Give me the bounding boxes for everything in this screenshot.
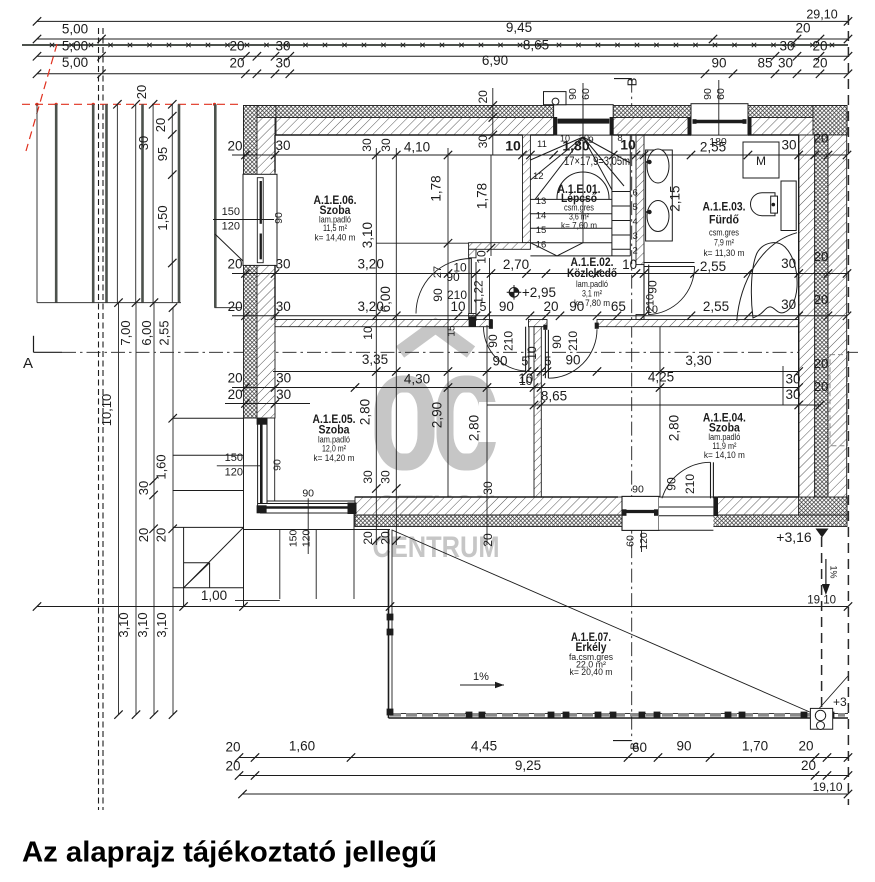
svg-text:30: 30 — [379, 138, 393, 152]
svg-text:5,00: 5,00 — [62, 55, 88, 70]
svg-text:10: 10 — [519, 374, 533, 388]
svg-text:95: 95 — [155, 147, 170, 161]
svg-text:90: 90 — [646, 280, 660, 294]
svg-text:+3,16: +3,16 — [776, 529, 812, 545]
svg-text:13: 13 — [536, 196, 547, 207]
svg-text:10: 10 — [505, 138, 521, 154]
svg-text:4,45: 4,45 — [471, 739, 497, 754]
svg-text:30: 30 — [481, 481, 495, 495]
svg-text:Közlekedő: Közlekedő — [567, 266, 617, 280]
svg-text:20: 20 — [153, 118, 168, 132]
svg-text:90: 90 — [272, 459, 284, 471]
svg-text:3,35: 3,35 — [362, 352, 388, 367]
svg-text:3: 3 — [633, 231, 638, 242]
svg-text:Az alaprajz tájékoztató jelleg: Az alaprajz tájékoztató jellegű — [22, 837, 437, 869]
svg-text:30: 30 — [361, 470, 375, 484]
svg-text:k= 20,40 m: k= 20,40 m — [570, 667, 613, 677]
svg-text:1,78: 1,78 — [429, 175, 444, 201]
svg-text:5,00: 5,00 — [62, 39, 88, 54]
svg-text:90: 90 — [711, 56, 726, 71]
svg-text:150: 150 — [222, 206, 240, 218]
svg-text:2,80: 2,80 — [667, 415, 682, 441]
svg-text:210: 210 — [447, 288, 467, 302]
svg-text:2,55: 2,55 — [157, 320, 172, 345]
svg-text:20: 20 — [229, 56, 244, 71]
svg-text:30: 30 — [136, 481, 151, 495]
svg-text:k= 7,80 m: k= 7,80 m — [574, 298, 610, 309]
svg-text:90: 90 — [676, 739, 691, 754]
svg-text:Fürdő: Fürdő — [709, 213, 739, 227]
svg-text:30: 30 — [579, 133, 589, 143]
svg-text:120: 120 — [638, 532, 650, 550]
svg-text:19,10: 19,10 — [813, 780, 843, 794]
svg-text:3,10: 3,10 — [360, 222, 375, 248]
svg-text:11: 11 — [537, 139, 547, 150]
svg-text:90: 90 — [499, 299, 514, 314]
svg-text:20: 20 — [228, 371, 243, 386]
svg-text:60: 60 — [632, 740, 647, 755]
svg-text:4,10: 4,10 — [404, 140, 430, 155]
svg-text:90: 90 — [273, 212, 285, 224]
svg-text:30: 30 — [276, 299, 291, 314]
svg-text:8,65: 8,65 — [541, 389, 567, 404]
svg-text:10: 10 — [560, 134, 570, 144]
svg-text:20: 20 — [481, 533, 495, 547]
svg-text:6,90: 6,90 — [482, 53, 508, 68]
svg-text:1,78: 1,78 — [475, 183, 490, 209]
svg-text:90: 90 — [431, 288, 445, 302]
svg-text:20: 20 — [814, 356, 828, 371]
svg-text:10: 10 — [361, 326, 375, 340]
svg-text:20: 20 — [229, 39, 244, 54]
svg-text:85: 85 — [757, 56, 772, 71]
svg-text:5: 5 — [545, 354, 552, 368]
svg-text:210: 210 — [683, 474, 697, 494]
svg-text:1,00: 1,00 — [201, 588, 227, 603]
svg-text:k= 11,30 m: k= 11,30 m — [704, 248, 745, 259]
svg-text:2,55: 2,55 — [703, 299, 729, 314]
svg-text:210: 210 — [501, 331, 515, 351]
svg-text:90: 90 — [632, 484, 644, 496]
svg-text:16: 16 — [536, 240, 547, 251]
svg-text:2,55: 2,55 — [700, 259, 726, 274]
svg-text:3,10: 3,10 — [154, 612, 169, 637]
svg-text:2,80: 2,80 — [358, 399, 373, 425]
svg-text:20: 20 — [227, 257, 242, 272]
svg-text:30: 30 — [275, 257, 290, 272]
svg-text:k= 14,10 m: k= 14,10 m — [704, 450, 745, 461]
svg-text:90: 90 — [550, 335, 564, 349]
svg-text:1%: 1% — [473, 671, 489, 683]
svg-text:30: 30 — [276, 371, 291, 386]
svg-text:90: 90 — [302, 488, 314, 500]
svg-text:210: 210 — [566, 331, 580, 351]
svg-text:20: 20 — [361, 531, 375, 545]
svg-text:k= 14,40 m: k= 14,40 m — [315, 232, 356, 243]
svg-text:2,80: 2,80 — [466, 415, 481, 441]
svg-text:6,00: 6,00 — [139, 320, 154, 345]
svg-text:6,00: 6,00 — [378, 286, 393, 312]
svg-text:20: 20 — [154, 528, 169, 542]
svg-text:29,10: 29,10 — [806, 8, 837, 22]
svg-text:30: 30 — [275, 39, 290, 54]
svg-text:20: 20 — [476, 90, 490, 104]
svg-text:30: 30 — [781, 297, 796, 312]
svg-text:19,10: 19,10 — [807, 595, 836, 607]
svg-text:60: 60 — [580, 88, 592, 100]
svg-text:60: 60 — [625, 535, 637, 547]
svg-text:20: 20 — [228, 299, 243, 314]
svg-text:150: 150 — [225, 452, 243, 464]
svg-text:10: 10 — [620, 137, 636, 153]
svg-text:20: 20 — [798, 739, 813, 754]
svg-text:20: 20 — [814, 131, 828, 146]
svg-text:1,22: 1,22 — [472, 280, 486, 304]
svg-text:1,60: 1,60 — [289, 739, 315, 754]
svg-text:9,25: 9,25 — [515, 758, 541, 773]
svg-text:30: 30 — [378, 470, 392, 484]
svg-text:1,70: 1,70 — [742, 739, 768, 754]
svg-text:20: 20 — [543, 299, 558, 314]
svg-text:15: 15 — [446, 325, 457, 337]
svg-text:30: 30 — [275, 56, 290, 71]
svg-text:20: 20 — [814, 292, 828, 307]
svg-text:3,30: 3,30 — [685, 353, 711, 368]
svg-text:2,90: 2,90 — [430, 402, 445, 428]
svg-text:90: 90 — [567, 88, 579, 100]
svg-text:M: M — [756, 154, 766, 168]
svg-text:90: 90 — [492, 353, 507, 368]
svg-text:1,60: 1,60 — [154, 454, 169, 479]
svg-text:3,10: 3,10 — [135, 612, 150, 637]
svg-text:20: 20 — [814, 249, 828, 264]
svg-text:30: 30 — [136, 136, 151, 150]
svg-text:30: 30 — [785, 387, 800, 402]
svg-text:5,00: 5,00 — [62, 22, 88, 37]
svg-text:2,70: 2,70 — [503, 257, 529, 272]
svg-text:2,15: 2,15 — [668, 185, 683, 211]
svg-text:4,30: 4,30 — [404, 372, 430, 387]
svg-text:90: 90 — [565, 353, 580, 368]
svg-text:20: 20 — [225, 759, 240, 774]
svg-text:+2,95: +2,95 — [522, 285, 556, 300]
svg-text:90: 90 — [446, 270, 460, 284]
svg-text:20: 20 — [814, 379, 828, 394]
svg-text:20: 20 — [228, 387, 243, 402]
svg-text:4,25: 4,25 — [648, 370, 674, 385]
svg-text:10,10: 10,10 — [99, 394, 114, 427]
svg-text:10: 10 — [622, 257, 637, 272]
svg-text:90: 90 — [665, 477, 679, 491]
svg-text:2: 2 — [633, 245, 638, 256]
svg-text:15: 15 — [536, 225, 547, 236]
svg-text:30: 30 — [785, 372, 800, 387]
svg-text:120: 120 — [301, 529, 313, 547]
svg-text:30: 30 — [781, 256, 796, 271]
svg-text:120: 120 — [225, 467, 243, 479]
svg-text:150: 150 — [288, 529, 300, 547]
svg-text:60: 60 — [715, 88, 727, 100]
svg-text:65: 65 — [611, 299, 626, 314]
svg-text:20: 20 — [225, 740, 240, 755]
svg-text:A: A — [23, 355, 33, 372]
svg-text:120: 120 — [222, 221, 240, 233]
svg-text:20: 20 — [136, 528, 151, 542]
svg-text:30: 30 — [779, 39, 794, 54]
svg-text:12: 12 — [533, 171, 544, 182]
svg-text:20: 20 — [795, 21, 810, 36]
svg-text:30: 30 — [360, 138, 374, 152]
svg-text:1%: 1% — [829, 565, 839, 578]
svg-text:10: 10 — [525, 346, 539, 360]
svg-text:90: 90 — [486, 334, 500, 348]
svg-text:30: 30 — [276, 387, 291, 402]
svg-text:90: 90 — [702, 88, 714, 100]
svg-text:8,65: 8,65 — [523, 38, 549, 53]
svg-text:5: 5 — [633, 202, 638, 213]
svg-text:20: 20 — [812, 56, 827, 71]
svg-text:1,50: 1,50 — [155, 205, 170, 230]
svg-text:7,00: 7,00 — [118, 320, 133, 345]
svg-text:30: 30 — [781, 138, 796, 153]
svg-text:9,45: 9,45 — [506, 20, 532, 35]
svg-text:2,55: 2,55 — [700, 140, 726, 155]
svg-text:20: 20 — [801, 758, 816, 773]
svg-text:20: 20 — [812, 39, 827, 54]
svg-text:+3,: +3, — [833, 695, 850, 709]
svg-text:4: 4 — [633, 217, 638, 228]
svg-text:27: 27 — [432, 266, 444, 278]
svg-text:A.1.E.03.: A.1.E.03. — [703, 200, 746, 214]
svg-text:30: 30 — [778, 56, 793, 71]
svg-text:3,20: 3,20 — [358, 257, 384, 272]
svg-text:20: 20 — [378, 531, 392, 545]
svg-text:20: 20 — [134, 85, 149, 99]
svg-text:30: 30 — [275, 138, 290, 153]
svg-text:17×17,9=3,05m: 17×17,9=3,05m — [564, 156, 630, 168]
svg-text:k= 7,60 m: k= 7,60 m — [561, 220, 597, 231]
svg-text:3,10: 3,10 — [116, 612, 131, 637]
svg-text:k= 14,20 m: k= 14,20 m — [314, 453, 355, 464]
svg-text:20: 20 — [227, 139, 242, 154]
svg-text:10: 10 — [646, 304, 658, 316]
svg-text:14: 14 — [536, 211, 547, 222]
svg-text:10: 10 — [475, 250, 489, 264]
svg-text:6: 6 — [633, 188, 638, 199]
svg-text:30: 30 — [476, 135, 490, 149]
